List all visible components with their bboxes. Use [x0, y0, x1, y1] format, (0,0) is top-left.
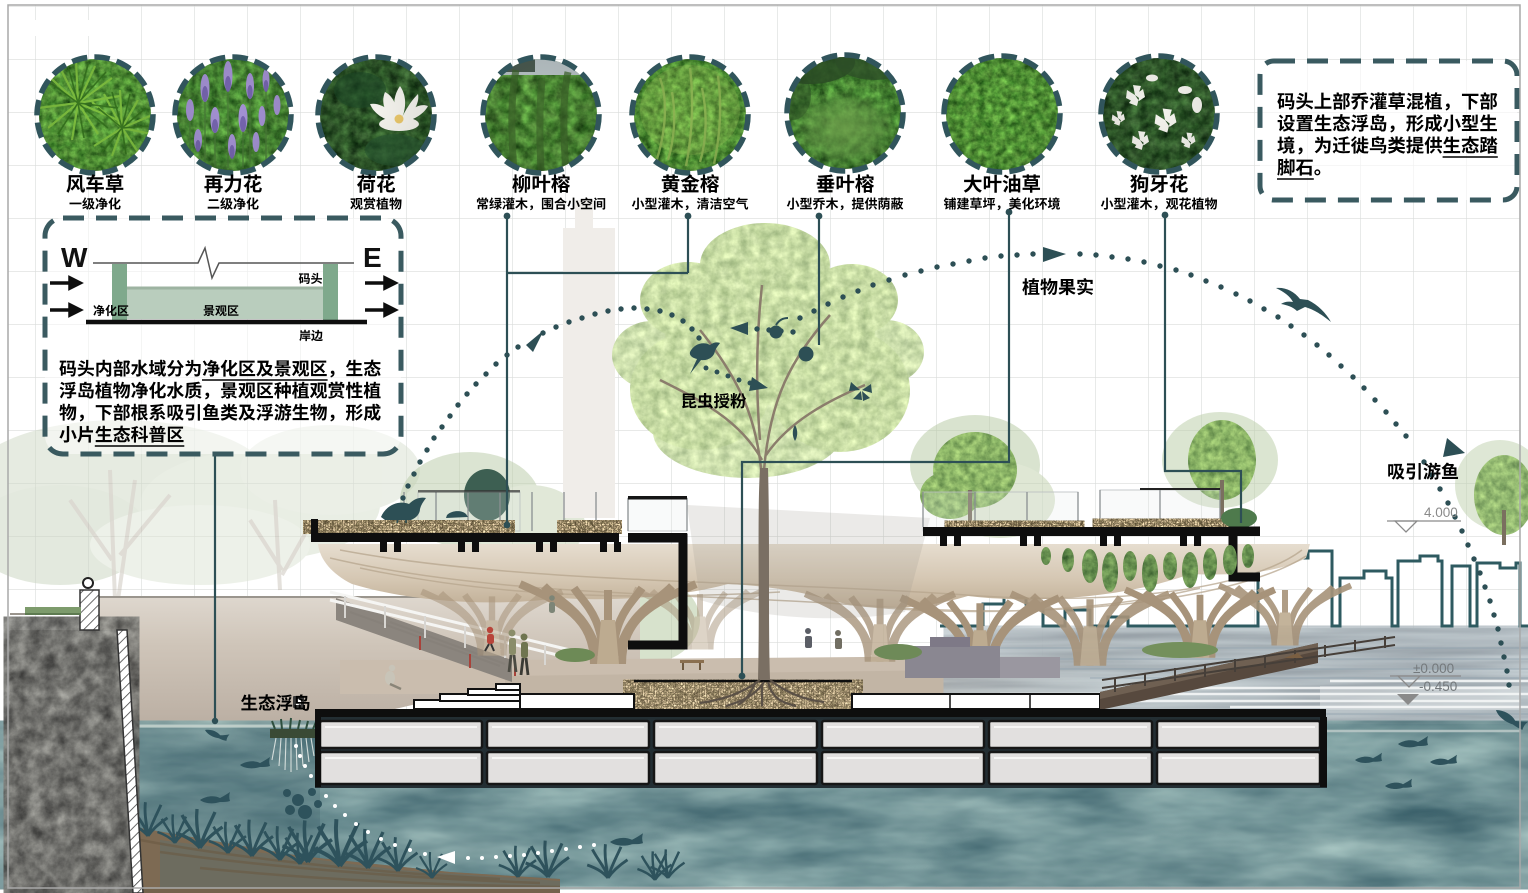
svg-text:W: W [61, 242, 88, 273]
svg-text:±0.000: ±0.000 [1413, 661, 1454, 676]
svg-text:E: E [363, 242, 382, 273]
svg-text:-0.450: -0.450 [1419, 679, 1457, 694]
svg-text:4.000: 4.000 [1424, 505, 1458, 520]
